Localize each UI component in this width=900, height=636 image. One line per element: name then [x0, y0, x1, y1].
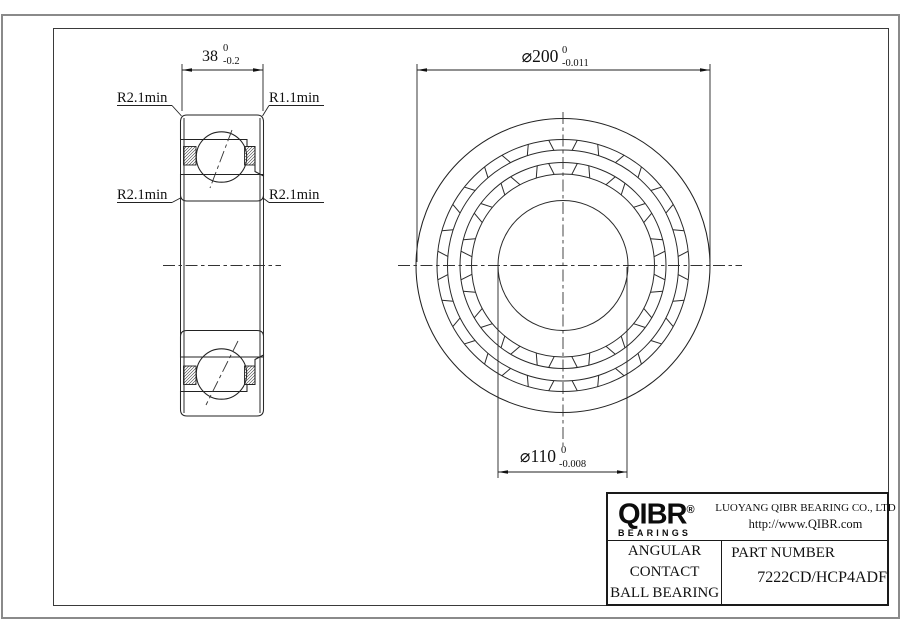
contact-angle-line-lower	[206, 341, 238, 405]
logo-sub-text: BEARINGS	[618, 528, 723, 538]
part-number-label: PART NUMBER	[731, 545, 887, 562]
outer-dim-tol-lower: -0.011	[562, 58, 589, 69]
r-label-top-right: R1.1min	[269, 90, 320, 106]
cage-lower-right	[245, 366, 256, 385]
outer-dim-tol-upper: 0	[562, 45, 567, 56]
title-block-header-row: QIBR® BEARINGS LUOYANG QIBR BEARING CO.,…	[608, 494, 887, 541]
r-label-top-left: R2.1min	[117, 90, 168, 106]
bore-dim-tol-lower: -0.008	[559, 459, 586, 470]
front-view	[398, 112, 742, 448]
cage-upper-right	[245, 147, 256, 166]
registered-mark: ®	[687, 504, 695, 516]
cage-lower-left	[184, 366, 197, 385]
dimension-width-38: 38 0 -0.2	[182, 43, 263, 111]
inner-ring-lower-section	[181, 331, 264, 358]
r-label-mid-left: R2.1min	[117, 187, 168, 203]
outer-ring-lower-section	[181, 355, 264, 416]
product-type-cell: ANGULAR CONTACT BALL BEARING	[608, 540, 722, 604]
company-name: LUOYANG QIBR BEARING CO., LTD	[715, 502, 896, 514]
inner-ring-upper-section	[181, 175, 264, 202]
logo-brand-text: QIBR®	[618, 495, 723, 530]
part-number-cell: PART NUMBER 7222CD/HCP4ADF	[722, 540, 887, 604]
part-number-value: 7222CD/HCP4ADF	[757, 569, 887, 587]
bore-dim-value: ⌀110	[520, 446, 556, 466]
width-dim-tol-upper: 0	[223, 43, 228, 54]
dimension-outer-200: ⌀200 0 -0.011	[417, 45, 710, 262]
title-block: QIBR® BEARINGS LUOYANG QIBR BEARING CO.,…	[606, 492, 889, 606]
contact-angle-line-upper	[210, 130, 232, 188]
width-dim-value: 38	[202, 48, 218, 65]
title-block-bottom-row: ANGULAR CONTACT BALL BEARING PART NUMBER…	[608, 540, 887, 604]
product-type-line1: ANGULAR CONTACT	[608, 541, 721, 583]
r-label-mid-right: R2.1min	[269, 187, 320, 203]
width-dim-tol-lower: -0.2	[223, 56, 240, 67]
chamfer-labels: R2.1min R1.1min R2.1min R2.1min	[117, 90, 324, 203]
company-website: http://www.QIBR.com	[749, 517, 863, 532]
qibr-logo: QIBR® BEARINGS	[618, 495, 723, 538]
logo-brand: QIBR	[618, 499, 687, 531]
cage-upper-left	[184, 147, 197, 166]
side-view	[163, 115, 281, 416]
drawing-page: 38 0 -0.2 ⌀200 0 -0.011 ⌀110 0 -0.008	[0, 0, 900, 636]
outer-ring-upper-section	[181, 115, 264, 176]
bore-dim-tol-upper: 0	[561, 445, 566, 456]
product-type-line2: BALL BEARING	[610, 583, 719, 604]
company-info: LUOYANG QIBR BEARING CO., LTD http://www…	[726, 494, 885, 540]
outer-dim-value: ⌀200	[522, 46, 559, 66]
